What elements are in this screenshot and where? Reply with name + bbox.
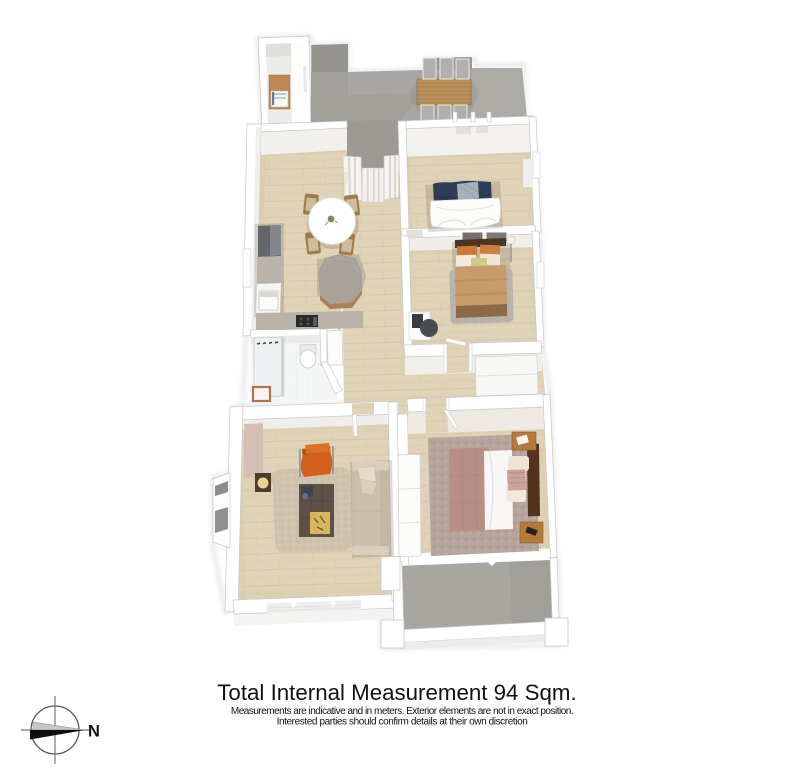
- svg-text:Interested parties should conf: Interested parties should confirm detail…: [277, 717, 528, 728]
- svg-text:N: N: [88, 723, 100, 741]
- svg-text:Total Internal Measurement 94: Total Internal Measurement 94 Sqm.: [217, 680, 576, 705]
- svg-text:Measurements are indicative an: Measurements are indicative and in meter…: [231, 706, 573, 717]
